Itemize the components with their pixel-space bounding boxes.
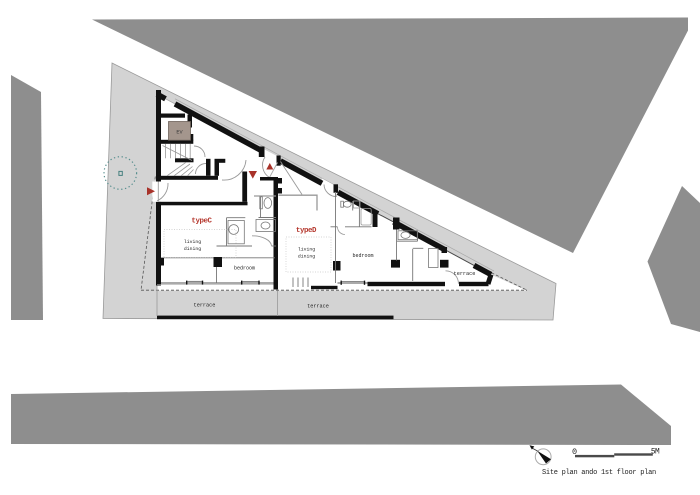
svg-text:dining: dining [298,254,315,260]
svg-text:living: living [298,247,315,253]
svg-text:terrace: terrace [454,271,476,277]
svg-text:bedroom: bedroom [352,253,373,259]
svg-text:bedroom: bedroom [234,266,255,272]
svg-text:0: 0 [572,447,577,457]
svg-text:terrace: terrace [307,304,329,310]
svg-text:typeD: typeD [296,227,317,235]
svg-text:living: living [184,239,201,245]
svg-text:5M: 5M [651,448,660,456]
svg-text:Site plan ando 1st floor plan: Site plan ando 1st floor plan [542,469,656,477]
svg-text:EV: EV [176,130,183,136]
svg-text:typeC: typeC [191,217,212,225]
svg-text:dining: dining [184,246,201,252]
svg-text:terrace: terrace [194,303,216,309]
